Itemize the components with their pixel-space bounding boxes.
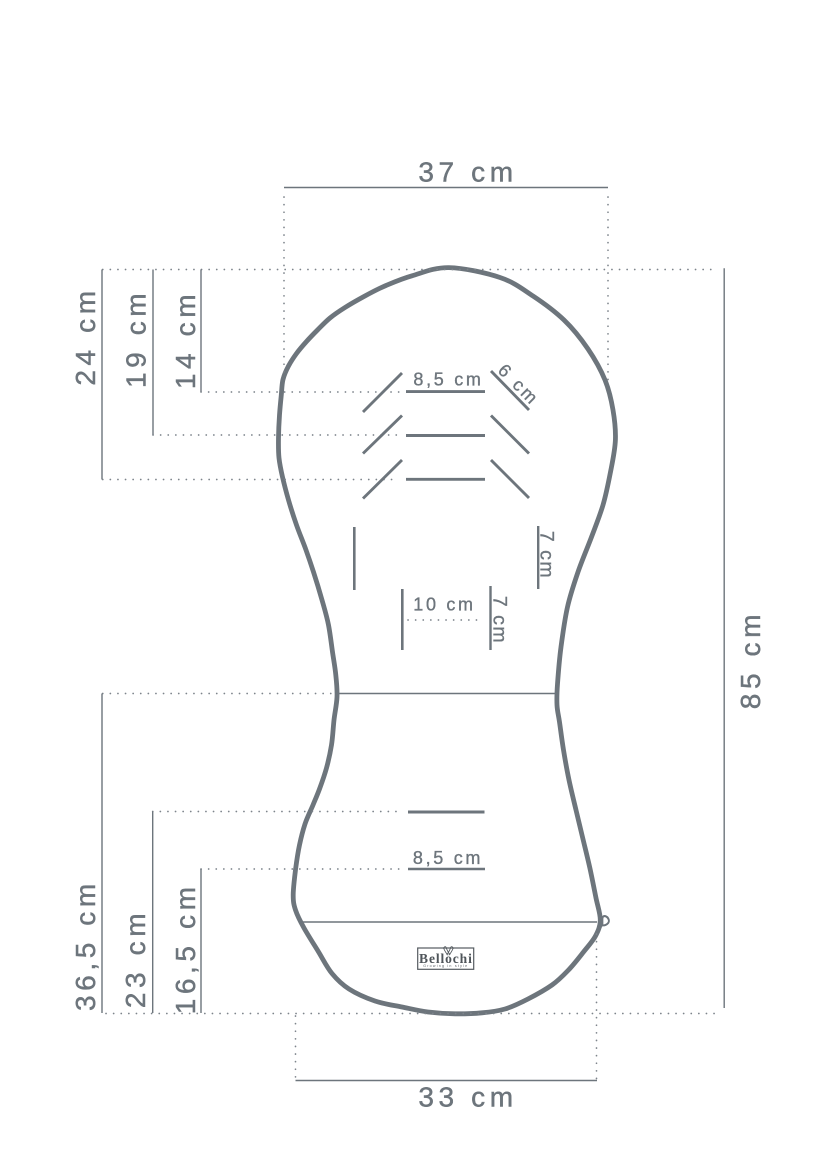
svg-text:19 cm: 19 cm: [120, 289, 151, 388]
svg-text:24 cm: 24 cm: [70, 286, 101, 385]
svg-text:36,5 cm: 36,5 cm: [70, 879, 101, 1011]
svg-text:16,5 cm: 16,5 cm: [170, 882, 201, 1014]
svg-text:8,5 cm: 8,5 cm: [413, 370, 483, 390]
svg-text:Growing in style: Growing in style: [423, 964, 468, 968]
svg-text:33 cm: 33 cm: [418, 1082, 517, 1113]
svg-text:7 cm: 7 cm: [489, 596, 511, 644]
svg-text:37 cm: 37 cm: [418, 157, 517, 188]
svg-text:23 cm: 23 cm: [120, 909, 151, 1008]
svg-text:14 cm: 14 cm: [170, 290, 201, 389]
svg-text:10 cm: 10 cm: [413, 595, 476, 615]
svg-text:85 cm: 85 cm: [735, 610, 766, 709]
svg-text:7 cm: 7 cm: [536, 531, 558, 579]
svg-text:8,5 cm: 8,5 cm: [413, 848, 483, 868]
